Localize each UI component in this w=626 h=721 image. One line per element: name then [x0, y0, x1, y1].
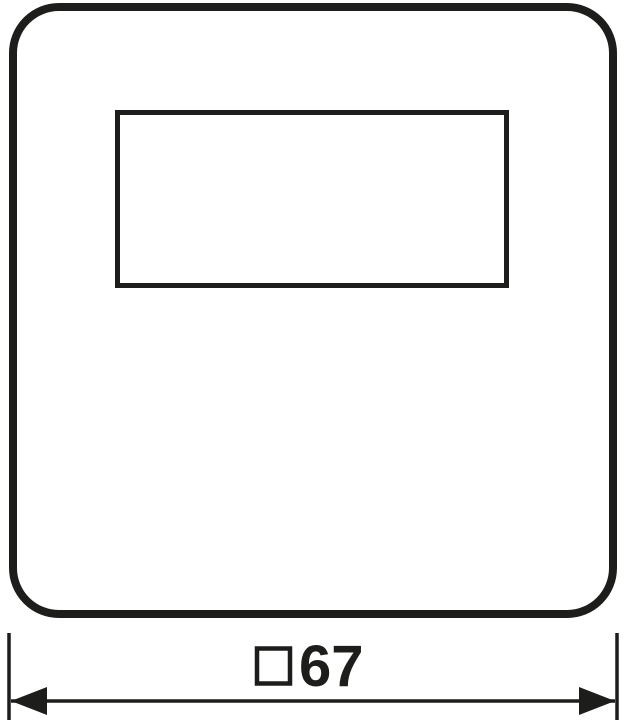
- technical-drawing: 67: [0, 0, 626, 721]
- cover-plate-outline: [13, 7, 613, 614]
- window-cutout-outline: [118, 113, 507, 286]
- square-dimension-symbol-icon: [257, 649, 290, 684]
- dimension-arrowhead-right-icon: [579, 687, 615, 715]
- drawing-svg: 67: [0, 0, 626, 721]
- dimension-arrowhead-left-icon: [11, 687, 47, 715]
- dimension-value-label: 67: [299, 634, 364, 699]
